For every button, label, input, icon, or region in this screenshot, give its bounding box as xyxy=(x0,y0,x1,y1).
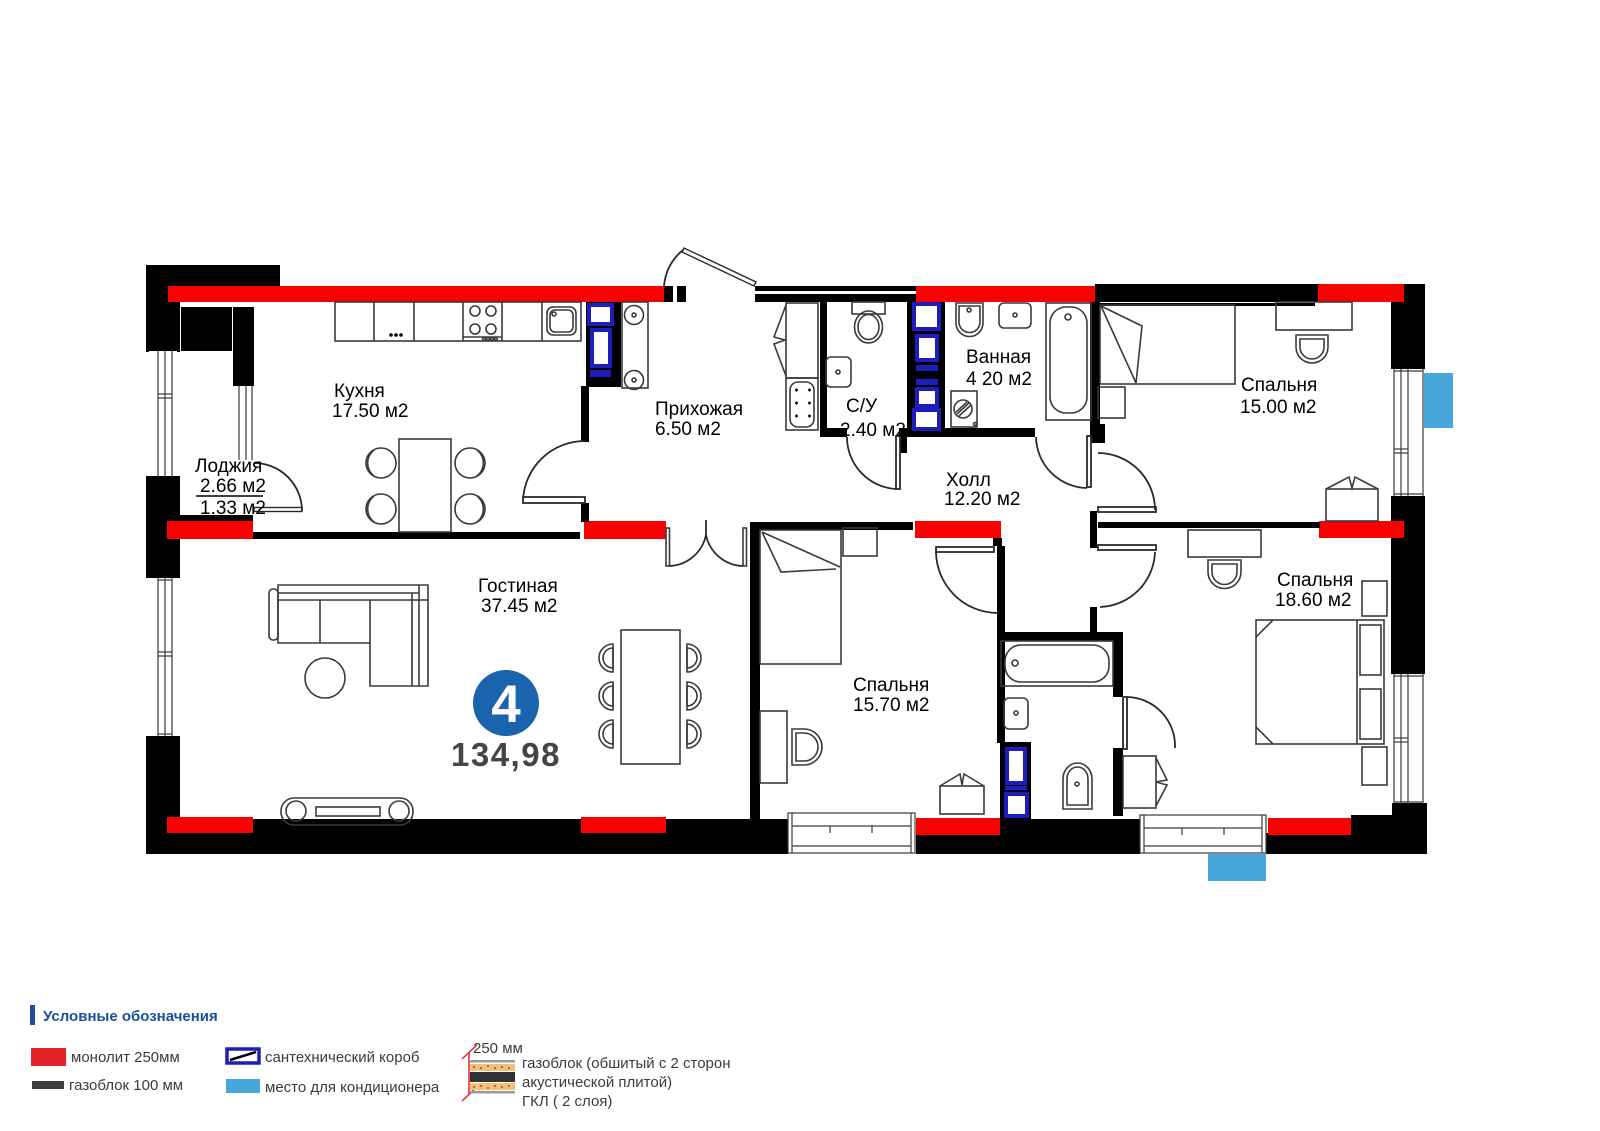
svg-text:1.33 м2: 1.33 м2 xyxy=(200,498,266,519)
svg-text:газоблок (обшитый с 2 сторон: газоблок (обшитый с 2 сторон xyxy=(522,1055,731,1072)
svg-text:ГКЛ ( 2 слоя): ГКЛ ( 2 слоя) xyxy=(522,1093,612,1110)
svg-text:250 мм: 250 мм xyxy=(473,1040,523,1057)
svg-text:2.66 м2: 2.66 м2 xyxy=(200,476,266,497)
svg-text:Спальня: Спальня xyxy=(853,675,929,696)
svg-text:2.40 м2: 2.40 м2 xyxy=(840,420,906,441)
svg-text:Спальня: Спальня xyxy=(1277,570,1353,591)
svg-text:134,98: 134,98 xyxy=(451,736,561,773)
svg-text:место для кондиционера: место для кондиционера xyxy=(265,1079,440,1096)
svg-text:сантехнический короб: сантехнический короб xyxy=(265,1049,420,1066)
svg-text:6.50 м2: 6.50 м2 xyxy=(655,419,721,440)
svg-text:Лоджия: Лоджия xyxy=(195,456,262,477)
svg-text:Спальня: Спальня xyxy=(1241,375,1317,396)
svg-text:15.00 м2: 15.00 м2 xyxy=(1240,397,1316,418)
svg-text:4 20 м2: 4 20 м2 xyxy=(966,369,1032,390)
svg-text:акустической плитой): акустической плитой) xyxy=(522,1074,672,1091)
svg-text:Кухня: Кухня xyxy=(334,381,385,402)
svg-text:газоблок 100 мм: газоблок 100 мм xyxy=(69,1077,183,1094)
svg-text:Условные обозначения: Условные обозначения xyxy=(43,1008,218,1025)
svg-text:Гостиная: Гостиная xyxy=(478,576,558,597)
svg-text:Холл: Холл xyxy=(946,470,991,491)
svg-text:Прихожая: Прихожая xyxy=(655,399,743,420)
svg-text:Ванная: Ванная xyxy=(966,347,1031,368)
svg-text:4: 4 xyxy=(491,675,521,734)
svg-text:12.20 м2: 12.20 м2 xyxy=(944,489,1020,510)
svg-text:15.70 м2: 15.70 м2 xyxy=(853,695,929,716)
svg-text:С/У: С/У xyxy=(846,396,878,417)
svg-text:18.60 м2: 18.60 м2 xyxy=(1275,590,1351,611)
svg-text:37.45 м2: 37.45 м2 xyxy=(481,596,557,617)
svg-text:17.50 м2: 17.50 м2 xyxy=(332,401,408,422)
svg-text:монолит 250мм: монолит 250мм xyxy=(71,1049,180,1066)
